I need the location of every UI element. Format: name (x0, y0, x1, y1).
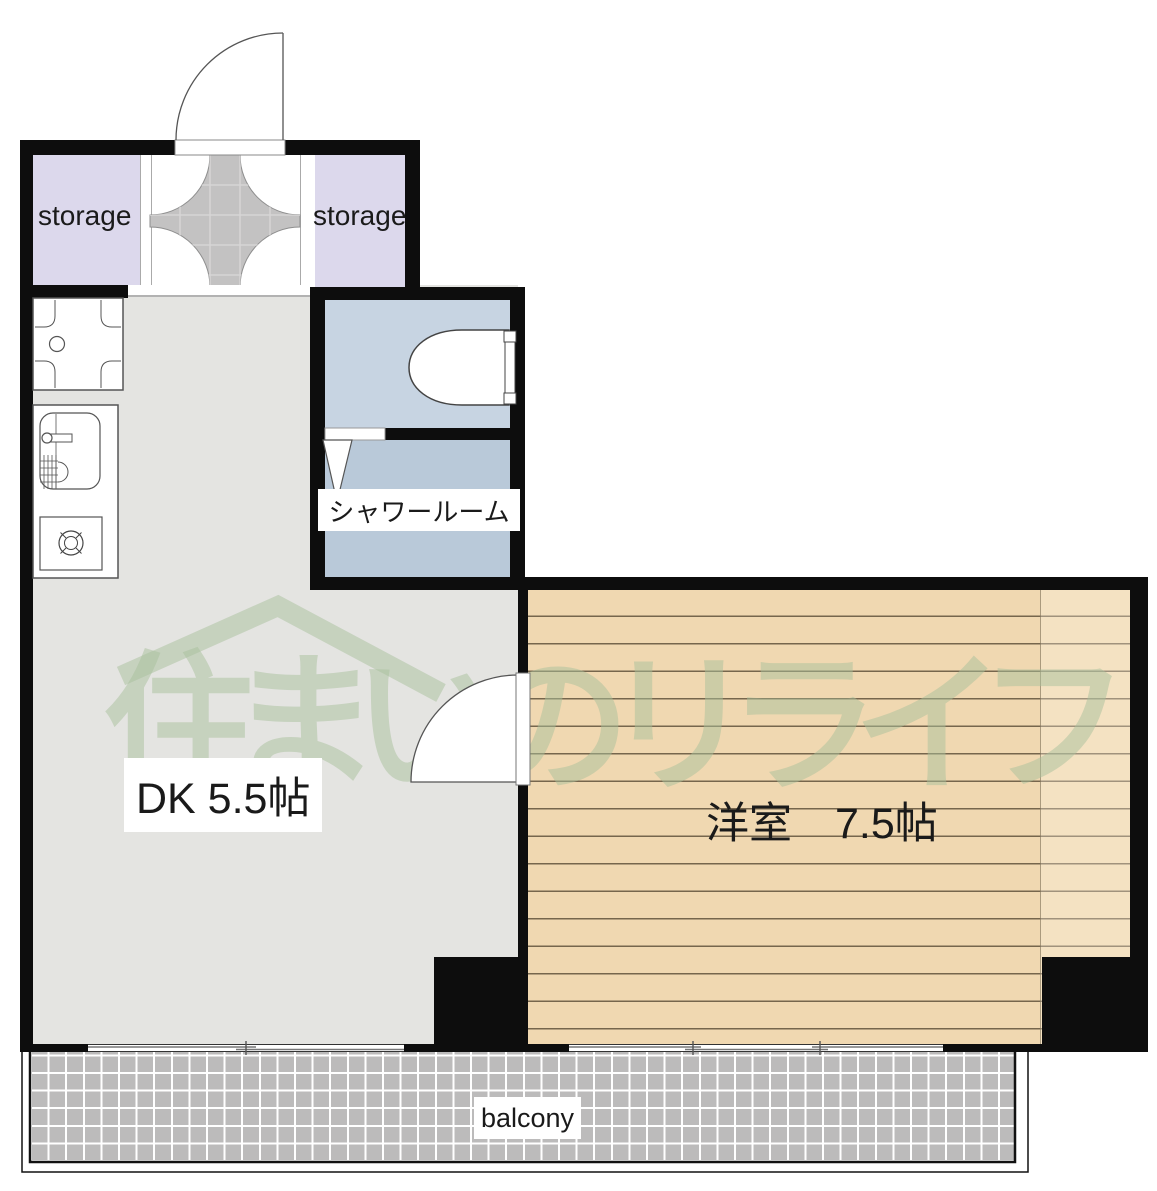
wall-dk-wet-divider (310, 287, 325, 590)
entrance-door (175, 33, 285, 155)
sink-basin (40, 413, 100, 489)
shower-room-label: シャワールーム (318, 489, 520, 531)
entrance-tile (150, 141, 300, 287)
floorplan: 住まいのリライフ (0, 0, 1157, 1191)
western-room-door-leaf (516, 673, 530, 785)
toilet-tank-knob-bottom (504, 393, 516, 404)
stove-icon (40, 517, 102, 570)
western-room-door (411, 673, 530, 785)
stove-outline (40, 517, 102, 570)
wall-western-top (310, 577, 1148, 590)
plan-overlay (0, 0, 1157, 1191)
kitchen-counter (33, 405, 118, 578)
western-room-door-arc-icon (411, 675, 518, 782)
faucet-base (42, 433, 52, 443)
wall-upper-right (405, 140, 420, 300)
pillar-western (1042, 957, 1148, 1052)
faucet-arm (50, 434, 72, 442)
entrance-door-arc-icon (176, 33, 283, 140)
wall-toilet-top (310, 287, 525, 300)
dk-label: DK 5.5帖 (124, 758, 322, 832)
wall-bottom-a (20, 1044, 88, 1052)
western-window-band (569, 1044, 943, 1052)
dk-window (88, 1041, 404, 1055)
pan-drain (50, 337, 65, 352)
walls (20, 140, 1148, 1052)
entrance-step (128, 285, 310, 297)
toilet-tank-knob-top (504, 331, 516, 342)
wall-top-left (20, 140, 175, 155)
wall-toilet-shower-divider (385, 428, 510, 440)
entrance-door-opening (175, 140, 285, 155)
western-window (569, 1041, 943, 1055)
wall-under-storage-left (20, 285, 128, 298)
balcony-label: balcony (474, 1097, 581, 1139)
kitchen-sink-icon (40, 413, 100, 489)
western-room-label: 洋室 7.5帖 (706, 789, 938, 851)
storage-left-label: storage (38, 200, 131, 232)
washing-machine-pan-icon (33, 298, 123, 390)
wall-left (20, 140, 33, 1052)
toilet-bowl (409, 330, 509, 405)
pillar-dk (434, 957, 522, 1052)
shower-door-opening (325, 428, 385, 440)
entrance-tile-shape (150, 155, 300, 287)
toilet-icon (409, 330, 516, 405)
storage-right-label: storage (313, 200, 407, 232)
wall-top-right (285, 140, 420, 155)
washing-machine-pan-outline (33, 298, 123, 390)
